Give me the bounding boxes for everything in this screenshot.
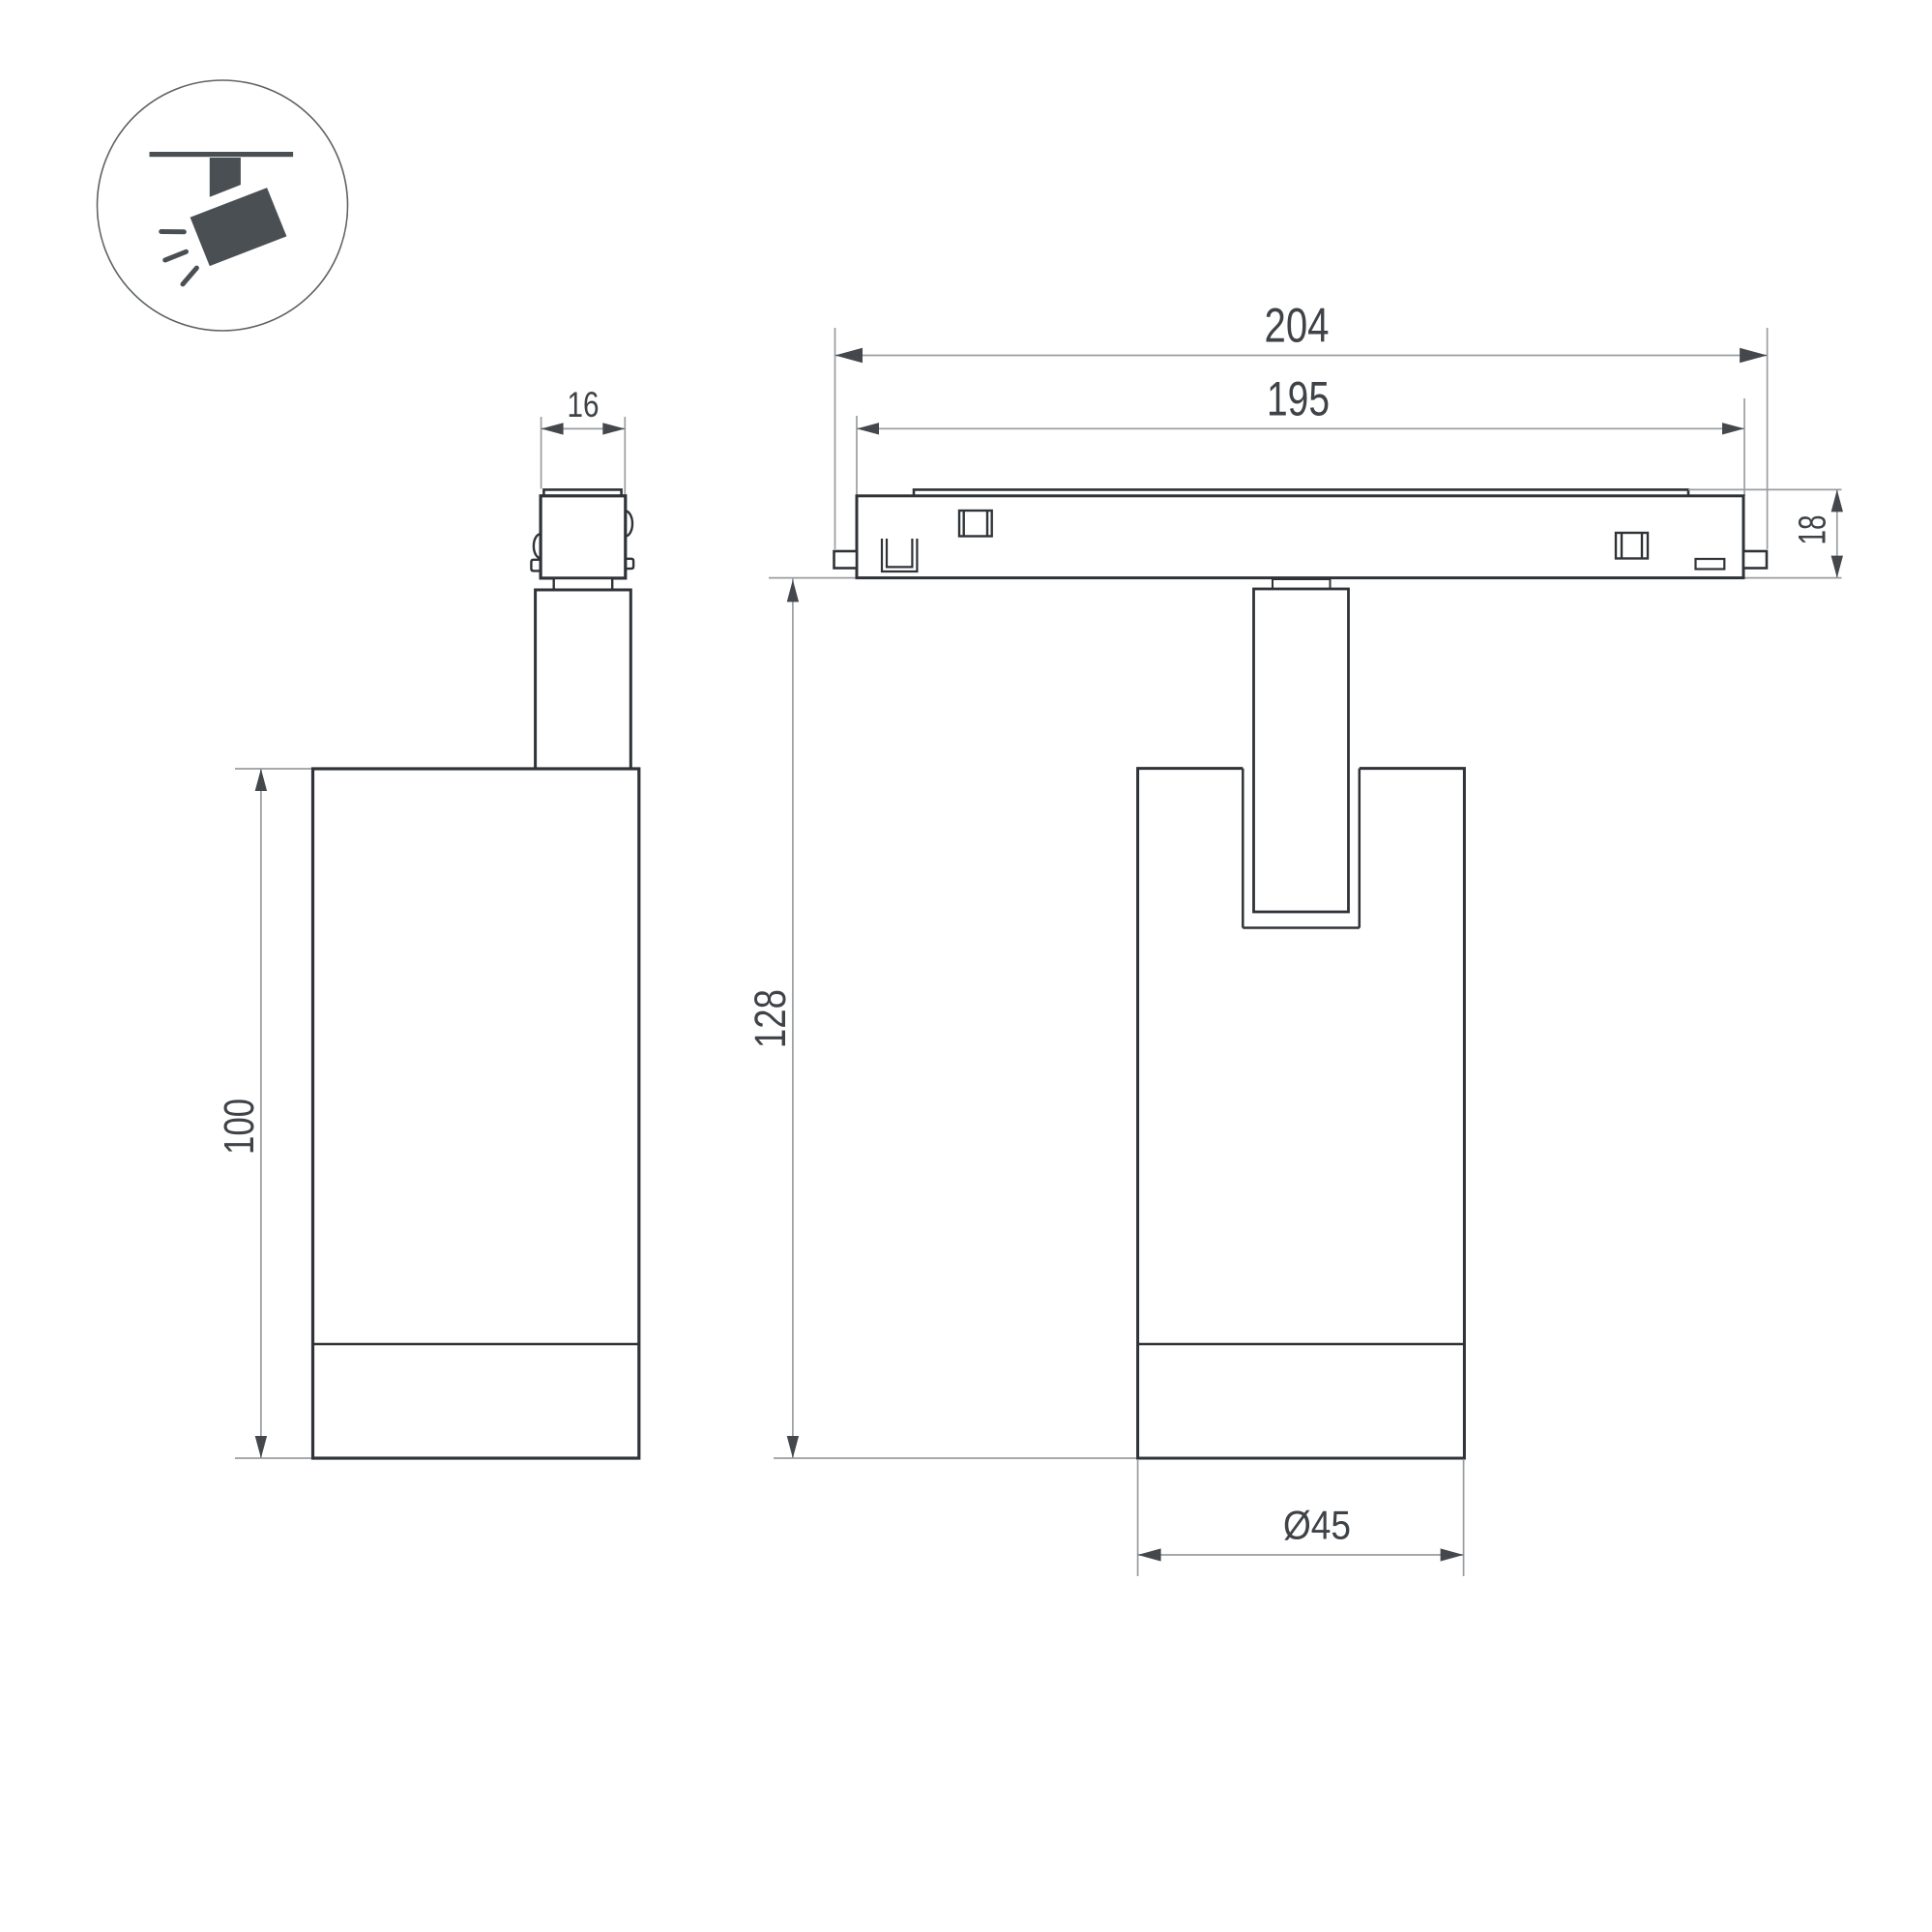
svg-text:16: 16	[568, 385, 600, 424]
svg-text:18: 18	[1792, 515, 1834, 545]
svg-text:204: 204	[1265, 298, 1330, 352]
svg-text:195: 195	[1267, 371, 1330, 425]
svg-text:Ø45: Ø45	[1283, 1503, 1351, 1548]
svg-text:100: 100	[216, 1098, 263, 1155]
svg-text:128: 128	[746, 989, 795, 1048]
